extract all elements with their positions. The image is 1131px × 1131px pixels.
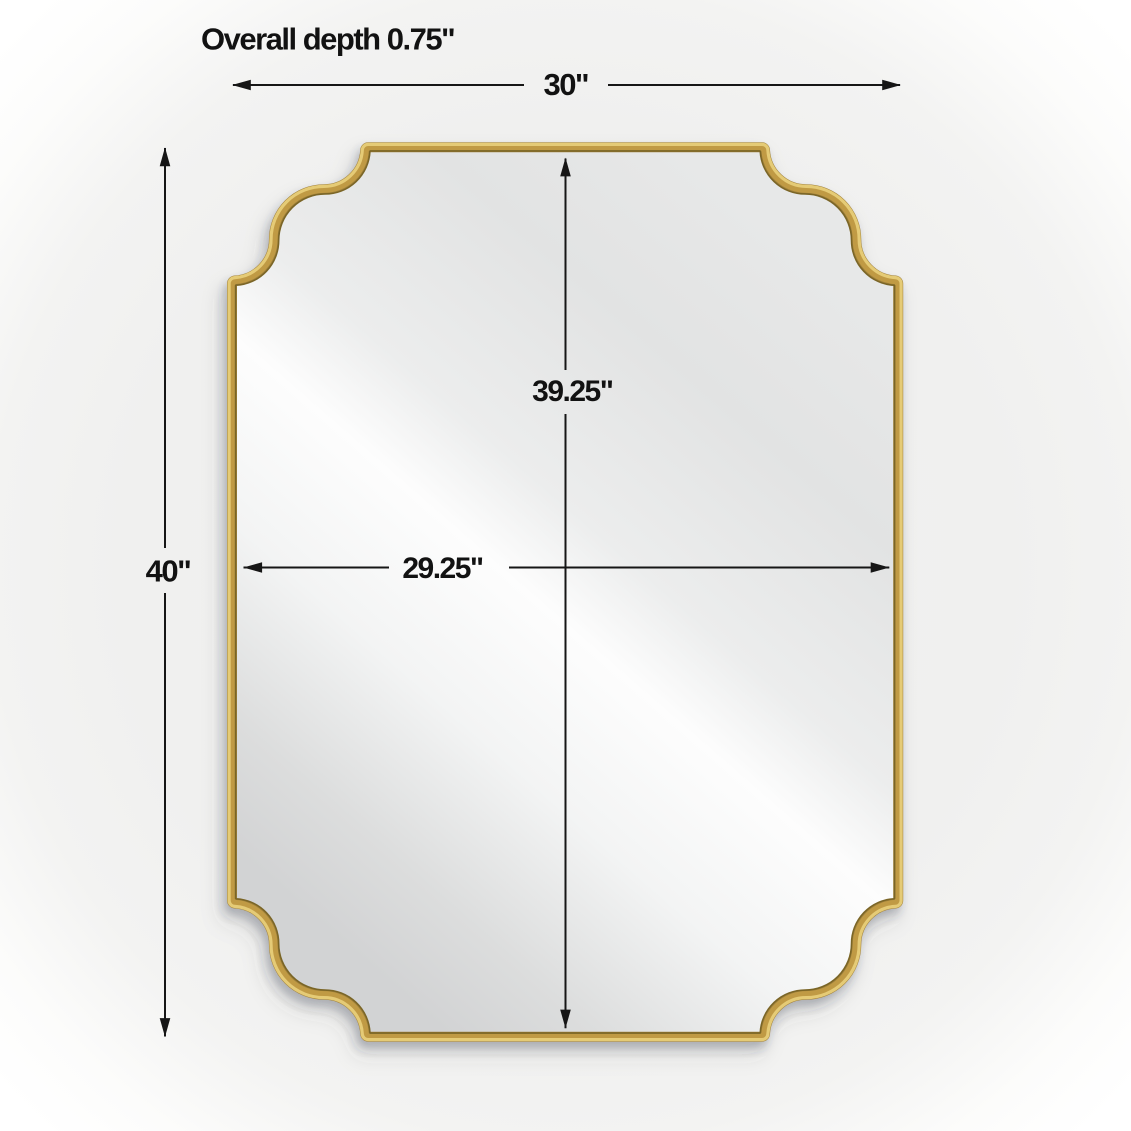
svg-text:Overall depth 0.75": Overall depth 0.75": [201, 22, 454, 57]
svg-text:30": 30": [543, 67, 588, 102]
svg-text:39.25": 39.25": [532, 375, 613, 408]
svg-text:29.25": 29.25": [402, 552, 483, 585]
svg-text:40": 40": [146, 554, 191, 589]
